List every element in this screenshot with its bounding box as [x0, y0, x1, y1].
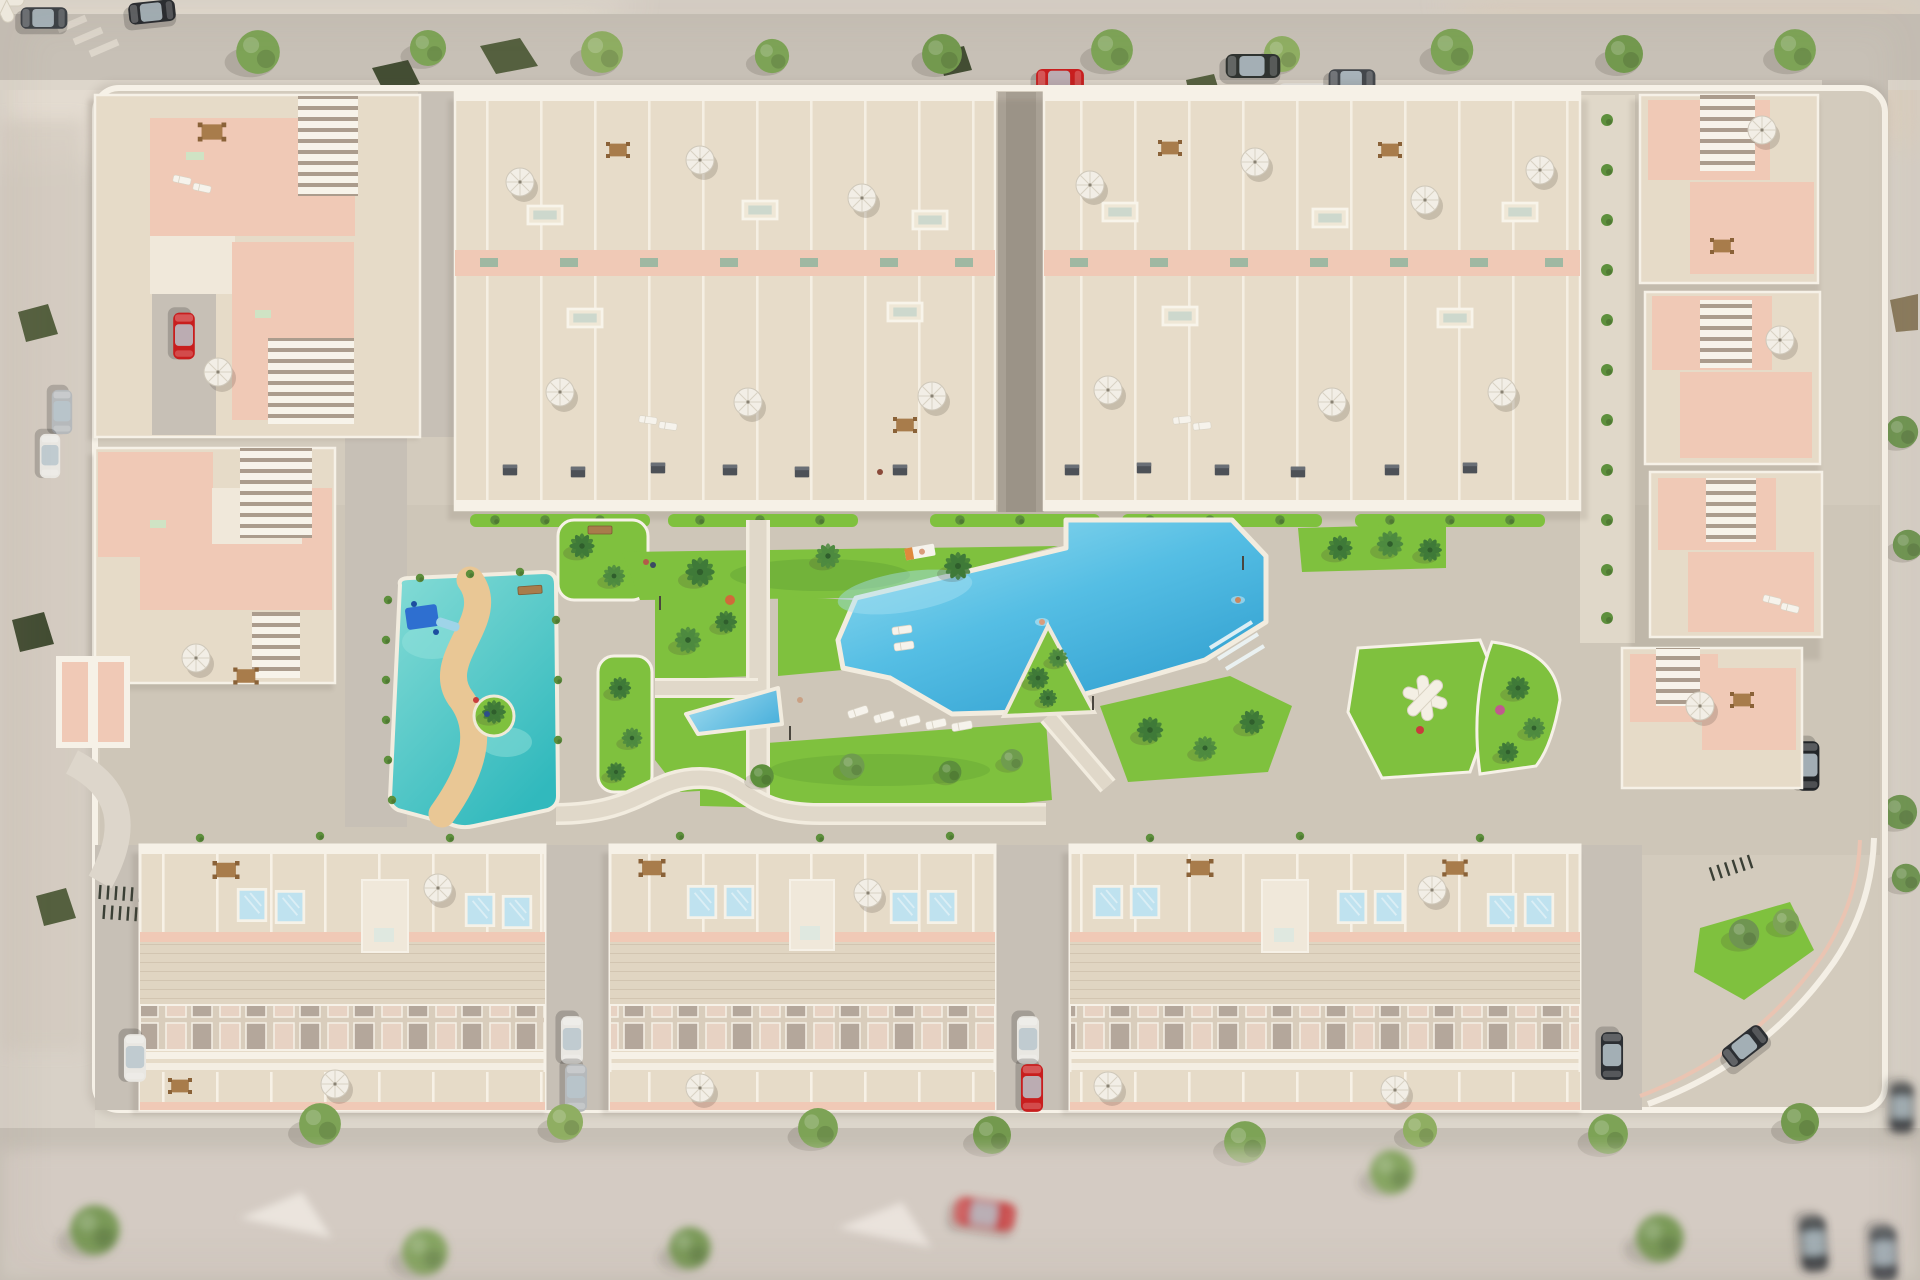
roof-dining-set [233, 668, 259, 685]
skylight-strip [150, 520, 166, 528]
townhouse-cluster-west [455, 92, 995, 510]
west-apartment-block-b [88, 448, 335, 690]
south-row-east [1062, 845, 1580, 1115]
sunbather [797, 697, 803, 703]
north-townhouse-clusters [448, 92, 1588, 520]
terrace-dining-set [1442, 860, 1468, 877]
rooftop-pool [891, 891, 919, 922]
person [643, 559, 649, 565]
rooftop-pool [466, 894, 494, 925]
terrace-dining-set [213, 861, 240, 879]
rooftop-pool [276, 891, 304, 922]
aerial-render [0, 0, 1920, 1280]
residential-complex [0, 0, 1888, 1116]
roof-dining-set [1730, 692, 1754, 708]
rooftop-pool [1131, 886, 1159, 917]
parked-car-white [35, 429, 61, 478]
east-block-2 [1645, 292, 1820, 464]
red-chair [1416, 726, 1424, 734]
louvered-pergola [1700, 300, 1752, 368]
south-townhouse-rows [118, 832, 1623, 1115]
courtyard-car-red [168, 307, 195, 359]
east-block-4 [1622, 648, 1802, 788]
east-block-1 [1640, 95, 1818, 283]
parked-car-red [1015, 1059, 1043, 1112]
skylight-strip [186, 152, 204, 160]
parked-car-white [118, 1029, 146, 1082]
parked-car-white [555, 1011, 583, 1064]
rooftop-pool [1488, 894, 1516, 925]
east-block-3 [1650, 472, 1822, 637]
rooftop-pool [1375, 891, 1403, 922]
parked-car-dark [1595, 1027, 1623, 1080]
person [877, 469, 883, 475]
playground-bench [518, 585, 542, 595]
rooftop-pool [1525, 894, 1553, 925]
pergola-band [610, 1005, 995, 1050]
flowering-bush [725, 595, 735, 605]
flowering-bush [1495, 705, 1505, 715]
west-apartment-block-a [88, 95, 420, 440]
tower-skylight [800, 926, 820, 940]
lawn [655, 596, 756, 680]
louvered-pergola [240, 448, 312, 538]
tower-skylight [1274, 928, 1294, 942]
pergola-band [140, 1005, 545, 1050]
rooftop-pool [1094, 886, 1122, 917]
kids-playground [382, 568, 562, 827]
rooftop-pool [503, 896, 531, 927]
terrace-dining-set [639, 859, 666, 877]
louvered-pergola [1700, 95, 1755, 171]
skylight-strip [255, 310, 271, 318]
roof-dining-set [1710, 238, 1734, 254]
child [473, 697, 479, 703]
rooftop-pool [1338, 891, 1366, 922]
render-canvas [0, 0, 1920, 1280]
person [650, 562, 656, 568]
louvered-stair [252, 612, 300, 678]
patio-dining-set [168, 1078, 192, 1094]
rooftop-pool [688, 886, 716, 917]
louvered-pergola [1706, 478, 1756, 542]
rooftop-pool [238, 889, 266, 920]
louvered-pergola [268, 338, 354, 424]
rooftop-pool [725, 886, 753, 917]
parked-car-white [1011, 1011, 1039, 1064]
child [484, 711, 490, 717]
rooftop-pool [928, 891, 956, 922]
south-row-center [602, 845, 995, 1115]
garden-bench [588, 526, 612, 534]
east-apartment-blocks [1622, 95, 1822, 788]
pergola-band [1070, 1005, 1580, 1050]
south-row-west [132, 845, 545, 1115]
townhouse-cluster-east [1044, 92, 1580, 510]
terrace-dining-set [1187, 859, 1214, 877]
parked-car-silver [47, 385, 72, 434]
roof-dining-set [198, 123, 227, 142]
parked-van-dark [1219, 54, 1280, 84]
louvered-pergola [298, 96, 358, 196]
parked-car-silver [559, 1059, 587, 1112]
tower-skylight [374, 928, 394, 942]
